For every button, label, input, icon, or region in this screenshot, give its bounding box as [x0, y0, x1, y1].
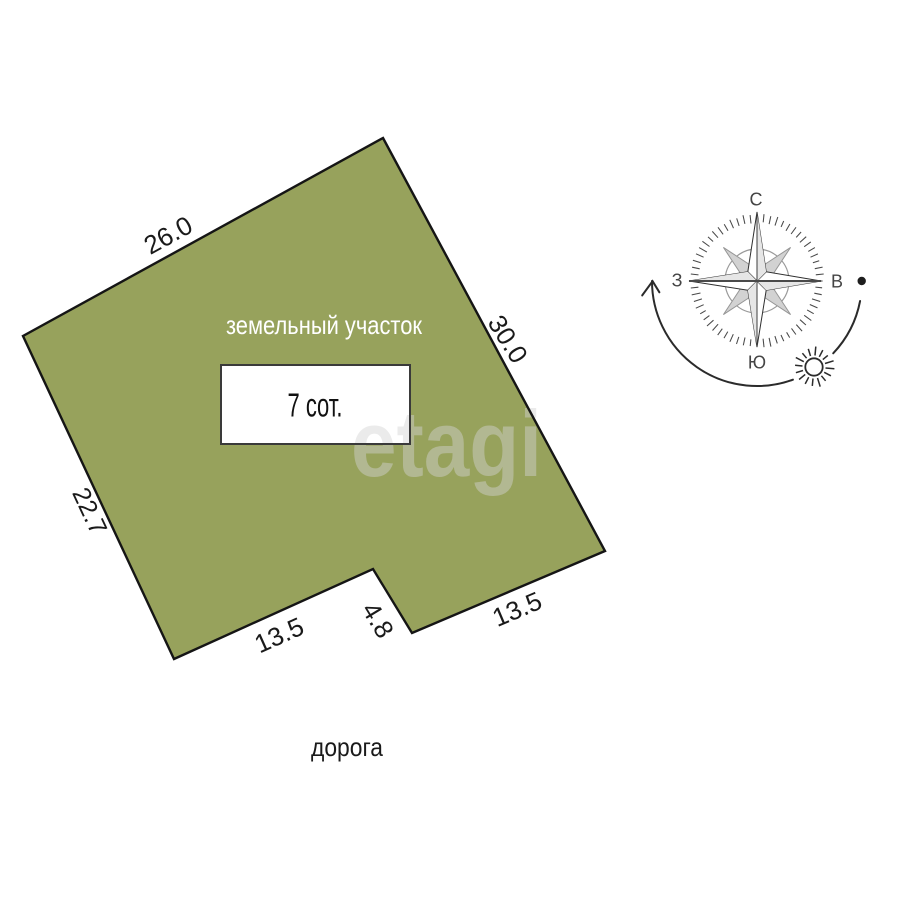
svg-text:Ю: Ю	[748, 352, 766, 372]
svg-text:З: З	[672, 270, 683, 290]
svg-text:С: С	[750, 189, 763, 209]
svg-text:В: В	[831, 271, 843, 291]
svg-text:дорога: дорога	[311, 732, 383, 762]
svg-text:7 сот.: 7 сот.	[288, 387, 343, 424]
svg-text:земельный участок: земельный участок	[226, 310, 423, 340]
